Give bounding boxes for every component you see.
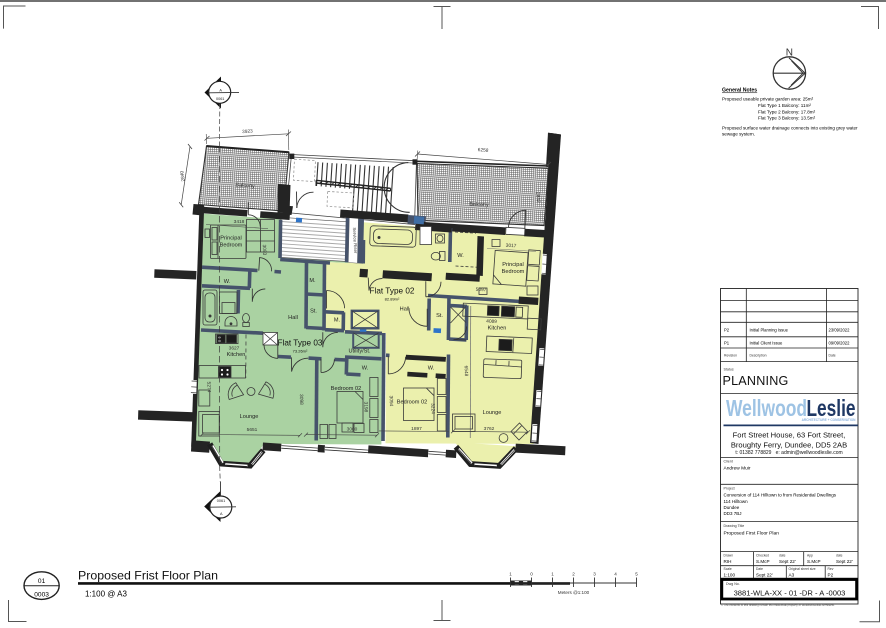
svg-text:ARCHITECTURE + CONSERVATION: ARCHITECTURE + CONSERVATION bbox=[802, 418, 857, 422]
svg-text:Date: Date bbox=[829, 354, 836, 358]
svg-text:3093: 3093 bbox=[261, 244, 268, 255]
svg-text:Hall: Hall bbox=[288, 315, 298, 321]
svg-text:Rev: Rev bbox=[828, 567, 834, 571]
svg-text:3017: 3017 bbox=[506, 243, 517, 250]
svg-text:09/09/2022: 09/09/2022 bbox=[829, 341, 851, 346]
svg-text:5097: 5097 bbox=[476, 287, 487, 294]
svg-text:Original sheet size: Original sheet size bbox=[789, 567, 816, 571]
svg-text:M.: M. bbox=[309, 278, 316, 284]
svg-text:3198: 3198 bbox=[362, 402, 368, 413]
svg-text:Balcony: Balcony bbox=[469, 202, 489, 209]
svg-text:Date: Date bbox=[756, 567, 763, 571]
svg-text:2: 2 bbox=[572, 572, 575, 577]
svg-text:6258: 6258 bbox=[478, 147, 489, 154]
svg-text:01: 01 bbox=[38, 578, 46, 585]
svg-text:Initial Planning Issue: Initial Planning Issue bbox=[750, 328, 789, 333]
svg-text:General Notes: General Notes bbox=[722, 88, 757, 94]
svg-text:Status: Status bbox=[724, 368, 734, 372]
svg-text:N: N bbox=[786, 48, 793, 59]
svg-text:1:100: 1:100 bbox=[724, 573, 736, 578]
svg-text:Lounge: Lounge bbox=[240, 414, 259, 420]
svg-text:Flat Type 03: Flat Type 03 bbox=[278, 339, 323, 348]
svg-text:Proposed useable private garde: Proposed useable private garden area: 25… bbox=[722, 97, 814, 102]
svg-text:date: date bbox=[779, 554, 786, 558]
svg-text:sewage system.: sewage system. bbox=[722, 132, 755, 137]
svg-text:3094: 3094 bbox=[388, 396, 394, 407]
svg-text:0: 0 bbox=[530, 572, 533, 577]
svg-text:1:100 @ A3: 1:100 @ A3 bbox=[85, 590, 127, 599]
svg-text:t: 01382 778829 e: admin@wel: t: 01382 778829 e: admin@wellwoodleslie.… bbox=[735, 450, 842, 456]
svg-text:W.: W. bbox=[362, 366, 369, 372]
svg-text:St.: St. bbox=[436, 313, 443, 319]
svg-text:W.: W. bbox=[457, 253, 464, 259]
svg-text:Andrew Muir: Andrew Muir bbox=[724, 466, 751, 472]
svg-text:3: 3 bbox=[593, 572, 596, 577]
svg-text:P2: P2 bbox=[828, 573, 834, 578]
svg-text:PLANNING: PLANNING bbox=[723, 374, 789, 388]
svg-text:5: 5 bbox=[635, 572, 638, 577]
svg-text:Wellwood: Wellwood bbox=[726, 395, 807, 421]
svg-text:5274: 5274 bbox=[205, 382, 211, 393]
svg-text:Flat Type 2 Balcony: 17.8m²: Flat Type 2 Balcony: 17.8m² bbox=[758, 109, 816, 114]
svg-text:Conversion of 114 Hilltown to: Conversion of 114 Hilltown to from Resid… bbox=[724, 493, 837, 498]
svg-text:W.: W. bbox=[428, 366, 435, 372]
svg-text:Kitchen: Kitchen bbox=[227, 352, 246, 358]
svg-text:Sept 22': Sept 22' bbox=[836, 559, 853, 564]
svg-text:Drawing Title: Drawing Title bbox=[724, 524, 745, 528]
svg-text:W.: W. bbox=[224, 279, 231, 285]
svg-text:© The contents of this drawing: © The contents of this drawing remain th… bbox=[721, 603, 835, 607]
svg-text:Principal: Principal bbox=[502, 262, 523, 268]
svg-text:A: A bbox=[220, 512, 223, 516]
svg-text:3762: 3762 bbox=[484, 426, 495, 432]
svg-text:3000: 3000 bbox=[347, 426, 358, 432]
svg-text:Bedroom 02: Bedroom 02 bbox=[397, 400, 427, 406]
svg-text:1: 1 bbox=[551, 572, 554, 577]
svg-text:6548: 6548 bbox=[463, 366, 469, 377]
svg-text:Description: Description bbox=[750, 354, 767, 358]
svg-text:1: 1 bbox=[509, 572, 512, 577]
svg-text:Utility/St.: Utility/St. bbox=[348, 349, 371, 355]
svg-text:Dundee: Dundee bbox=[724, 505, 740, 510]
svg-text:Proposed surface water drainag: Proposed surface water drainage connects… bbox=[722, 126, 858, 131]
svg-text:Proposed Frist Floor Plan: Proposed Frist Floor Plan bbox=[78, 569, 218, 583]
svg-text:Lounge: Lounge bbox=[483, 410, 502, 416]
svg-text:82.89m²: 82.89m² bbox=[385, 297, 400, 302]
svg-text:Flat Type 02: Flat Type 02 bbox=[370, 287, 415, 296]
svg-text:Drawn: Drawn bbox=[724, 554, 734, 558]
svg-text:Fort Street House, 63 Fort Str: Fort Street House, 63 Fort Street, bbox=[733, 431, 846, 440]
svg-text:S.McP: S.McP bbox=[756, 559, 770, 564]
svg-text:5651: 5651 bbox=[247, 427, 258, 433]
svg-text:St.: St. bbox=[310, 309, 317, 315]
svg-text:3881-WLA-XX - 01 -DR - A -0003: 3881-WLA-XX - 01 -DR - A -0003 bbox=[734, 589, 846, 598]
svg-text:Scale: Scale bbox=[724, 567, 732, 571]
svg-text:Kitchen: Kitchen bbox=[488, 326, 507, 332]
svg-text:0061: 0061 bbox=[217, 499, 225, 503]
svg-text:P1: P1 bbox=[724, 341, 730, 346]
svg-text:Bedroom: Bedroom bbox=[502, 269, 525, 275]
svg-text:3224: 3224 bbox=[429, 403, 435, 414]
svg-text:App: App bbox=[807, 554, 813, 558]
svg-text:Meters @1:100: Meters @1:100 bbox=[558, 590, 590, 595]
svg-text:Hall: Hall bbox=[400, 307, 410, 313]
svg-text:A3: A3 bbox=[789, 573, 795, 578]
svg-text:2842: 2842 bbox=[535, 192, 542, 203]
svg-text:Proposed First Floor Plan: Proposed First Floor Plan bbox=[724, 531, 780, 537]
svg-text:RIH: RIH bbox=[724, 559, 732, 564]
svg-text:Client: Client bbox=[724, 460, 733, 464]
svg-text:Dwg No.: Dwg No. bbox=[726, 582, 740, 586]
svg-text:3098: 3098 bbox=[298, 394, 304, 405]
svg-text:73.26m²: 73.26m² bbox=[293, 349, 308, 354]
svg-text:4089: 4089 bbox=[486, 319, 497, 326]
svg-text:Initial Client Issue: Initial Client Issue bbox=[750, 341, 783, 346]
svg-text:23/09/2022: 23/09/2022 bbox=[829, 328, 851, 333]
svg-text:114 Hilltown: 114 Hilltown bbox=[724, 499, 749, 504]
svg-text:S.McP: S.McP bbox=[807, 559, 821, 564]
svg-text:Principal: Principal bbox=[220, 236, 241, 242]
svg-text:DD3 7BJ: DD3 7BJ bbox=[724, 511, 742, 516]
svg-text:Sept 22': Sept 22' bbox=[756, 573, 773, 578]
svg-text:4: 4 bbox=[614, 572, 617, 577]
svg-text:0003: 0003 bbox=[34, 592, 49, 599]
svg-text:Bedroom 02: Bedroom 02 bbox=[331, 386, 361, 392]
svg-text:Project: Project bbox=[724, 487, 735, 491]
svg-text:3627: 3627 bbox=[229, 346, 240, 352]
svg-text:Checked: Checked bbox=[756, 554, 769, 558]
svg-text:date: date bbox=[836, 554, 843, 558]
svg-text:P2: P2 bbox=[724, 328, 730, 333]
svg-text:Flat Type 3 Balcony: 13.5m²: Flat Type 3 Balcony: 13.5m² bbox=[758, 116, 816, 121]
svg-text:Revision: Revision bbox=[724, 354, 737, 358]
svg-text:M.: M. bbox=[334, 318, 341, 324]
svg-text:Bedroom: Bedroom bbox=[220, 243, 243, 249]
svg-text:Broughty Ferry, Dundee, DD5 2A: Broughty Ferry, Dundee, DD5 2AB bbox=[731, 441, 847, 450]
svg-text:0061: 0061 bbox=[216, 97, 224, 101]
svg-text:3923: 3923 bbox=[242, 128, 253, 135]
svg-text:A: A bbox=[219, 89, 222, 93]
svg-text:Sept 22': Sept 22' bbox=[779, 559, 796, 564]
svg-text:3418: 3418 bbox=[234, 219, 245, 225]
svg-text:Flat Type 1 Balcony: 11m²: Flat Type 1 Balcony: 11m² bbox=[758, 103, 811, 108]
